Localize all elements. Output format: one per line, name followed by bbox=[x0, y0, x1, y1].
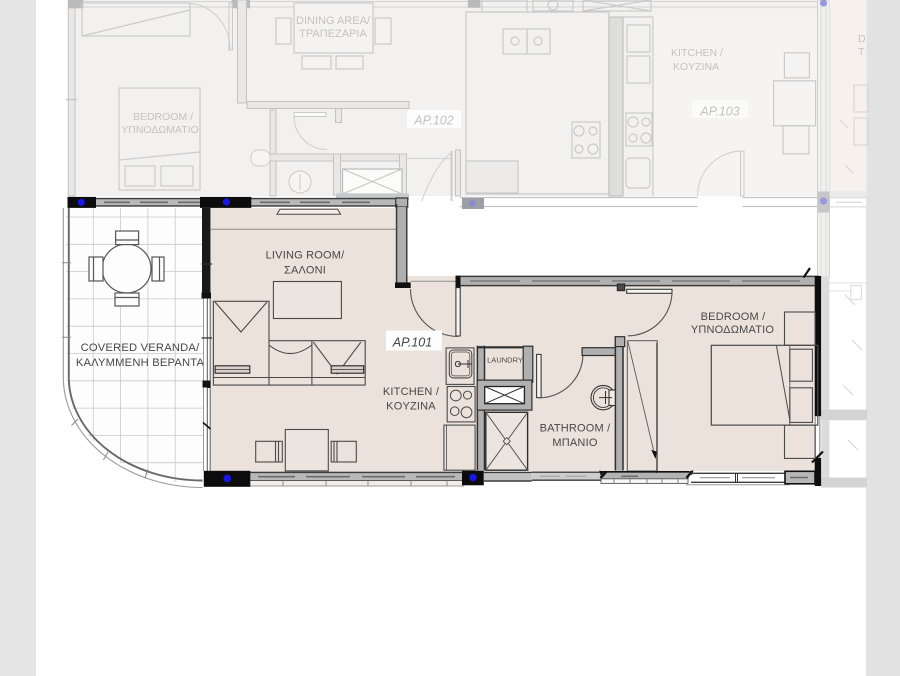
svg-text:AP.103: AP.103 bbox=[699, 105, 739, 119]
svg-text:KOYZINA: KOYZINA bbox=[673, 61, 719, 73]
svg-text:KITCHEN /: KITCHEN / bbox=[383, 386, 440, 398]
svg-text:ΥΠΝΟΔΩΜΑΤΙΟ: ΥΠΝΟΔΩΜΑΤΙΟ bbox=[691, 324, 775, 336]
svg-text:LAUNDRY: LAUNDRY bbox=[487, 356, 523, 365]
svg-text:BEDROOM /: BEDROOM / bbox=[701, 311, 766, 323]
svg-text:T: T bbox=[858, 46, 865, 58]
svg-text:D: D bbox=[858, 33, 866, 45]
svg-text:KOYZINA: KOYZINA bbox=[386, 401, 436, 413]
svg-text:LIVING ROOM/: LIVING ROOM/ bbox=[266, 250, 346, 262]
svg-text:DINING AREA/: DINING AREA/ bbox=[296, 15, 371, 27]
svg-text:ΜΠΑΝΙΟ: ΜΠΑΝΙΟ bbox=[552, 437, 597, 449]
svg-text:BATHROOM /: BATHROOM / bbox=[540, 423, 612, 435]
svg-text:ΥΠΝΟΔΩΜΑΤΙΟ: ΥΠΝΟΔΩΜΑΤΙΟ bbox=[121, 124, 198, 136]
svg-text:ΤΡΑΠΕΖΑΡΙΑ: ΤΡΑΠΕΖΑΡΙΑ bbox=[299, 28, 367, 40]
svg-text:AP.101: AP.101 bbox=[392, 336, 432, 350]
svg-text:BEDROOM /: BEDROOM / bbox=[133, 111, 193, 123]
svg-text:COVERED VERANDA/: COVERED VERANDA/ bbox=[81, 342, 201, 354]
svg-text:KITCHEN /: KITCHEN / bbox=[671, 47, 723, 59]
svg-text:ΣΑΛΟΝΙ: ΣΑΛΟΝΙ bbox=[284, 265, 326, 277]
svg-text:AP.102: AP.102 bbox=[413, 114, 453, 128]
svg-text:ΚΑΛΥΜΜΕΝΗ ΒΕΡΑΝΤΑ: ΚΑΛΥΜΜΕΝΗ ΒΕΡΑΝΤΑ bbox=[76, 357, 205, 369]
